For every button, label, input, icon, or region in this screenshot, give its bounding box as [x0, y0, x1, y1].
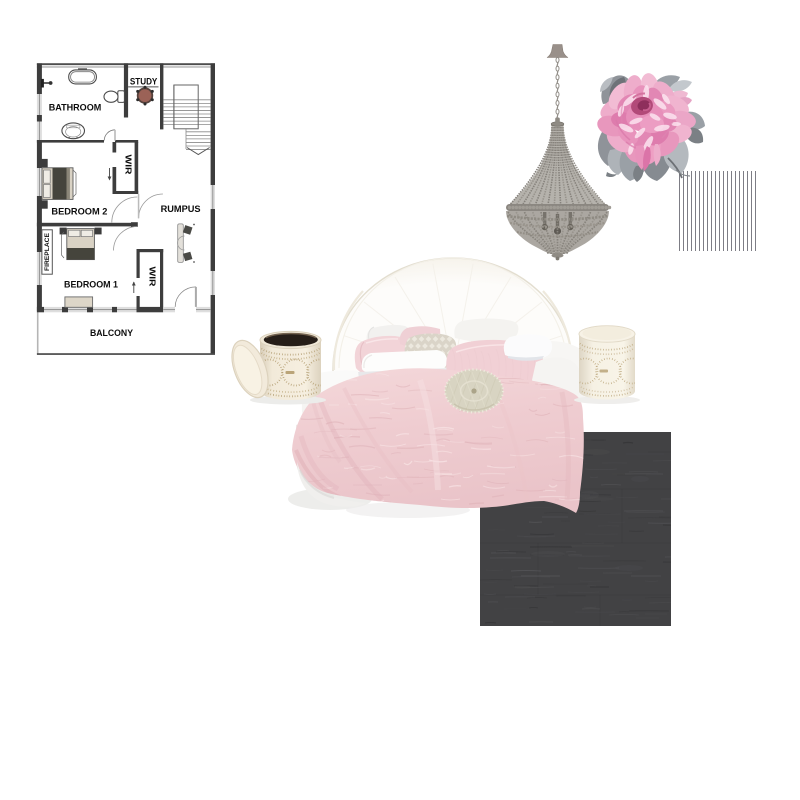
- svg-text:STUDY: STUDY: [130, 77, 158, 87]
- svg-text:BEDROOM 1: BEDROOM 1: [64, 279, 118, 290]
- svg-text:BATHROOM: BATHROOM: [49, 102, 102, 113]
- svg-text:FIREPLACE: FIREPLACE: [44, 233, 51, 271]
- svg-text:BEDROOM 2: BEDROOM 2: [51, 205, 107, 216]
- svg-text:WIR: WIR: [123, 155, 133, 176]
- svg-text:WIR: WIR: [148, 267, 158, 288]
- svg-text:BALCONY: BALCONY: [90, 327, 134, 338]
- svg-text:RUMPUS: RUMPUS: [161, 203, 201, 214]
